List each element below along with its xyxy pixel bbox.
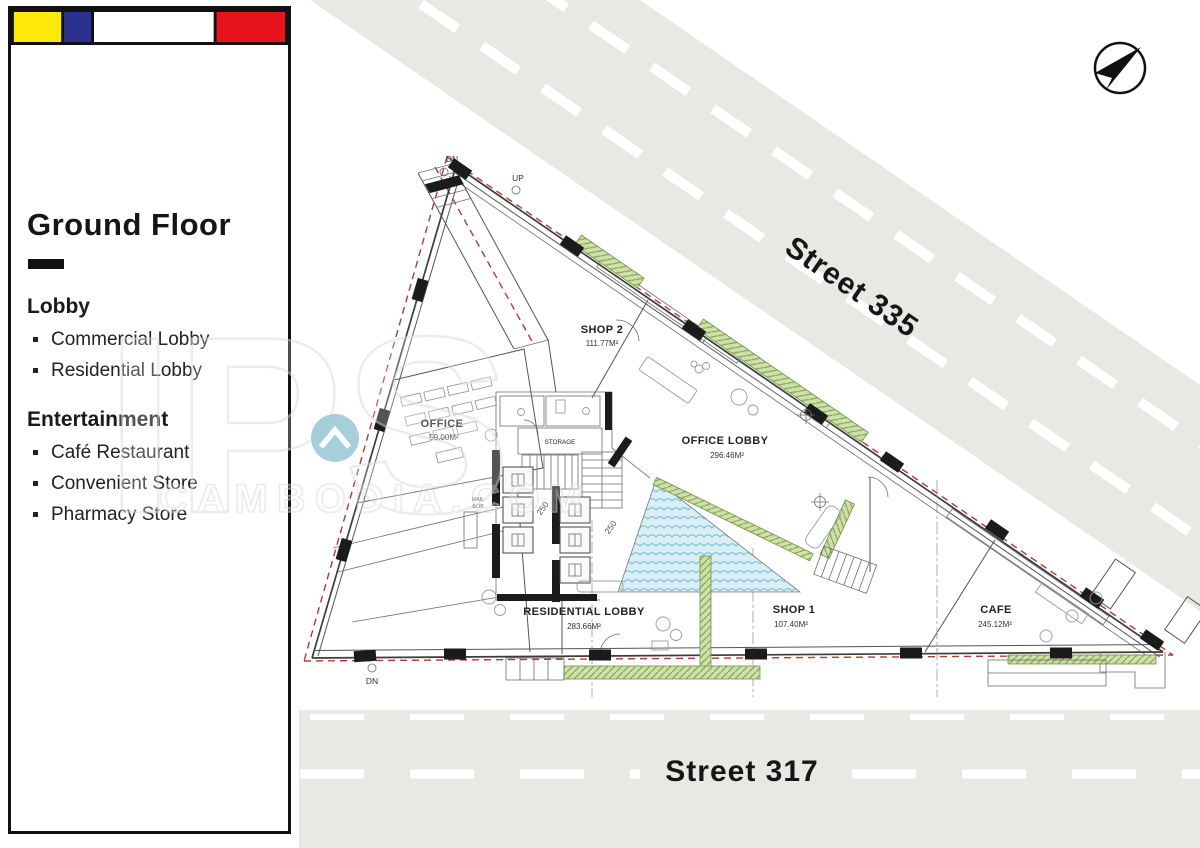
room-area-office-lobby: 296.46M²: [710, 451, 744, 460]
restrooms: [500, 396, 600, 426]
room-label-office-lobby: OFFICE LOBBY: [682, 435, 769, 447]
ramp-landing-block: [425, 175, 464, 193]
cafe-furniture: [1036, 582, 1102, 642]
exit-dn-label: DN: [366, 676, 378, 686]
dimension-250: 250: [602, 518, 618, 536]
room-label-cafe: CAFE: [980, 604, 1012, 616]
room-label-residential-lobby: RESIDENTIAL LOBBY: [523, 606, 645, 618]
elevator-cabin: [560, 527, 590, 553]
watermark-logo-icon: [311, 414, 359, 462]
storage-label: STORAGE: [545, 439, 576, 446]
elevator-cabin: [560, 557, 590, 583]
floorplan-page: Ground Floor Lobby Commercial Lobby Resi…: [0, 0, 1200, 848]
room-label-shop1: SHOP 1: [773, 604, 816, 616]
room-area-shop2: 111.77M²: [586, 339, 619, 348]
bottom-exit-ramp: DN: [366, 664, 378, 686]
street-317: Street 317: [299, 710, 1200, 848]
watermark: IPS CAMBODIA.COM: [105, 285, 591, 566]
room-area-residential-lobby: 283.66M²: [567, 622, 601, 631]
compass-icon: [1095, 43, 1145, 93]
room-area-cafe: 245.12M²: [978, 620, 1012, 629]
room-label-shop2: SHOP 2: [581, 324, 624, 336]
watermark-text-big: IPS: [105, 285, 511, 566]
street-317-label: Street 317: [665, 755, 818, 788]
ramp-marker-circle: [512, 186, 520, 194]
room-area-shop1: 107.40M²: [774, 620, 808, 629]
ramp-up-label: UP: [512, 173, 524, 183]
watermark-text-small: CAMBODIA.COM: [159, 477, 591, 521]
floor-plan-drawing: Street 335 Street 317: [0, 0, 1200, 848]
